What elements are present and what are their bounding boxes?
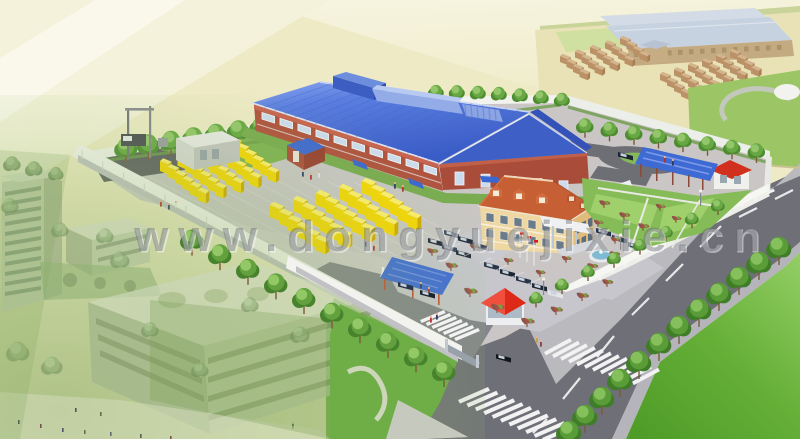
- svg-text:www.dongyuejixie.cn: www.dongyuejixie.cn: [133, 212, 770, 261]
